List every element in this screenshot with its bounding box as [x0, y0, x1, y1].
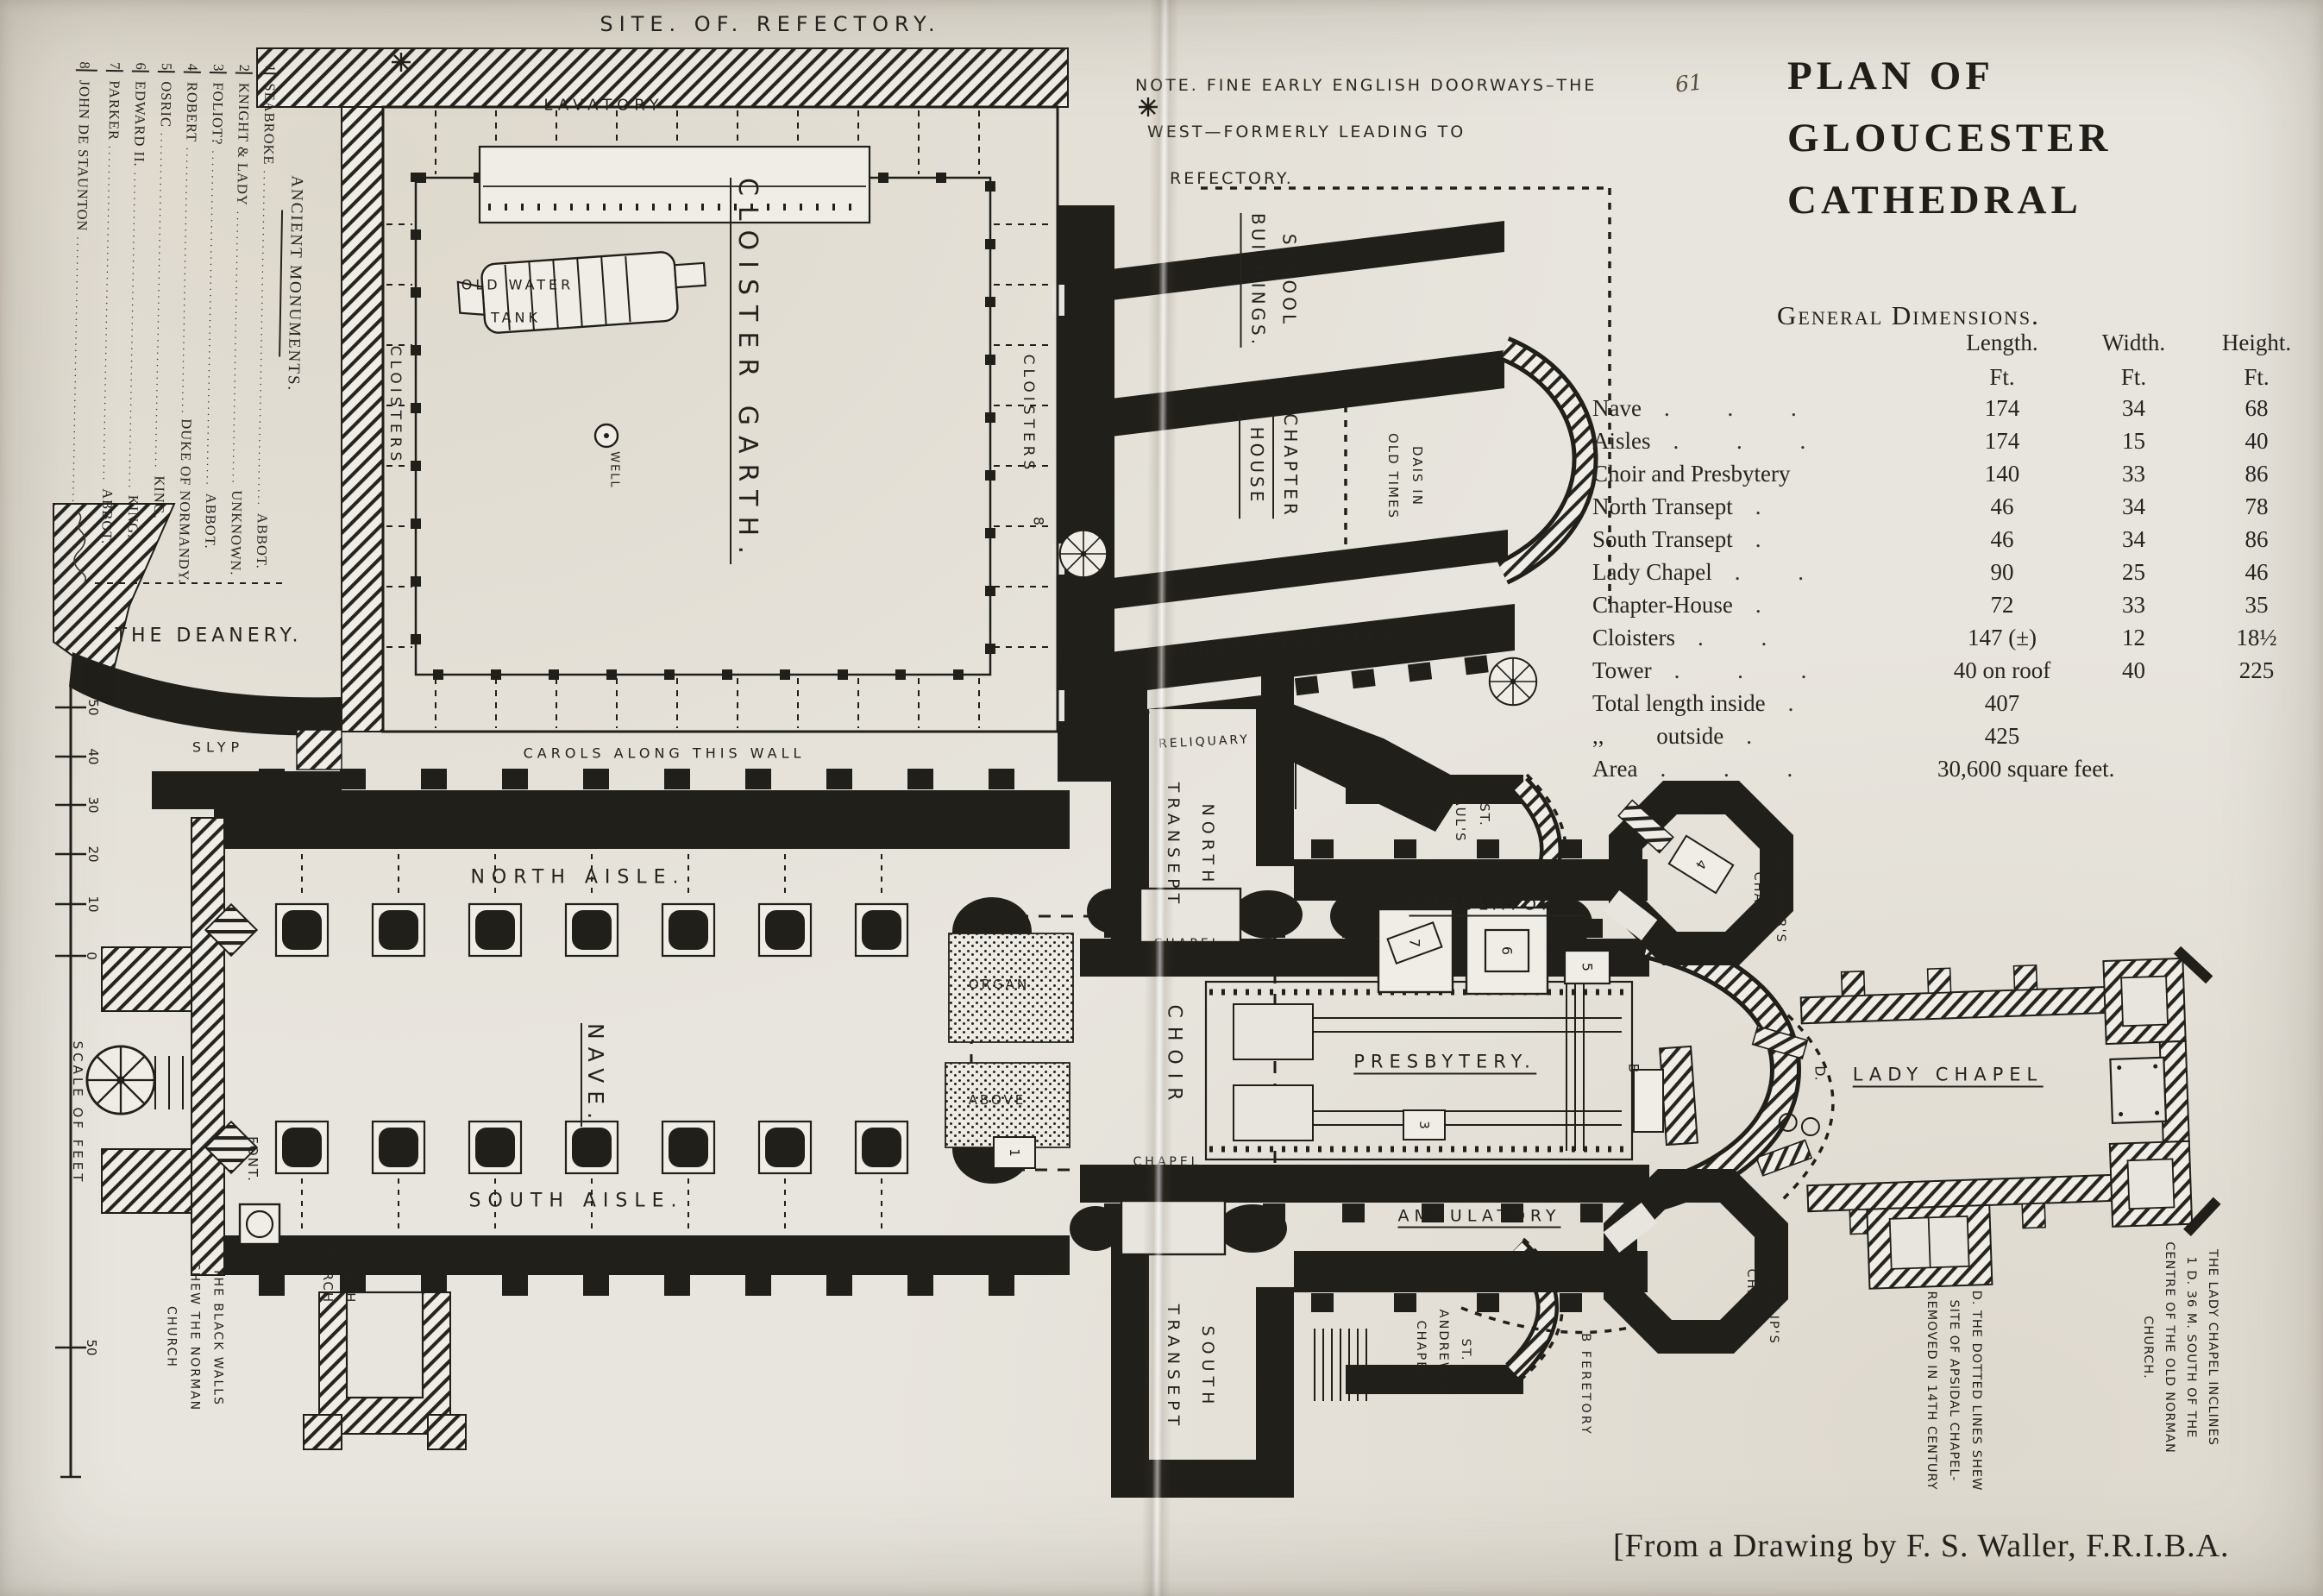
label-north-aisle: NORTH AISLE. [470, 867, 685, 889]
label-st-philips-chapel: ST. PHILIP'SCHAPEL [1740, 1252, 1785, 1345]
label-nave: NAVE. [581, 1023, 608, 1127]
label-the-deanery: THE DEANERY. [116, 625, 303, 647]
scale-tick: 30 [85, 796, 101, 813]
lavatory-and-water-tank [456, 147, 870, 447]
table-row: North Transept.463478 [1592, 493, 2313, 526]
table-row: Lady Chapel. .902546 [1592, 559, 2313, 592]
lady-chapel-letter-d: D. [1812, 1065, 1829, 1080]
refectory-note: NOTE. FINE EARLY ENGLISH DOORWAYS–THE WE… [1135, 62, 1597, 202]
label-south-porch: SOUTHPORCH [317, 1250, 361, 1304]
stair-turret [1060, 531, 1107, 577]
table-row: Cloisters. .147 (±)1218½ [1592, 625, 2313, 657]
label-lady-chapel-incline-note: THE LADY CHAPEL INCLINES1 D. 36 M. SOUTH… [2137, 1241, 2223, 1454]
handwritten-annotation [71, 510, 90, 593]
attribution: [From a Drawing by F. S. Waller, F.R.I.B… [1613, 1527, 2230, 1565]
label-lavatory: LAVATORY [543, 97, 663, 115]
scale-tick: 10 [85, 895, 101, 912]
label-chapel-south: CHAPEL [1133, 1155, 1202, 1169]
table-row: South Transept.463486 [1592, 526, 2313, 559]
label-black-walls-note: THE BLACK WALLSSHEW THE NORMANCHURCH [160, 1263, 229, 1411]
table-row: Chapter-House.723335 [1592, 592, 2313, 625]
table-header-row: Length. Width. Height. [1592, 330, 2313, 364]
label-dotted-lines-note: D. THE DOTTED LINES SHEWSITE OF APSIDAL … [1920, 1291, 1987, 1492]
monument-marker-8: 8 [1031, 517, 1047, 525]
table-row: ,, outside.425 [1592, 723, 2313, 756]
label-south-transept: SOUTHTRANSEPT [1156, 1304, 1225, 1430]
stair-turret [1490, 658, 1536, 705]
label-old-water-tank: TANK [491, 310, 541, 326]
label-ambulatory-north: AMBULATORY, [1409, 895, 1582, 917]
feretory-letter-b: B [1626, 1064, 1642, 1073]
compass-mark [392, 53, 411, 72]
legend-rule [279, 210, 283, 356]
label-school-buildings: SCHOOLBUILDINGS. [1240, 213, 1305, 348]
ancient-monuments-legend: ANCIENT MONUMENTS. 1SEABROKE............… [41, 61, 308, 502]
label-south-aisle: SOUTH AISLE. [468, 1191, 683, 1212]
label-slyp: SLYP [192, 739, 244, 756]
table-row: Nave. . .1743468 [1592, 395, 2313, 428]
label-cloisters-east: CLOISTERS [1020, 355, 1037, 474]
label-st-pauls-church: ST.PAUL'SCH. [1424, 788, 1497, 842]
stair-turret [87, 1046, 154, 1114]
monument-marker-6: 6 [1499, 946, 1516, 955]
label-cloisters-west: CLOISTERS [386, 346, 404, 466]
label-ambulatory-south: AMBULATORY [1397, 1207, 1560, 1228]
label-carols: CAROLS ALONG THIS WALL [524, 745, 806, 762]
page-title: PLAN OF GLOUCESTER CATHEDRAL [1787, 45, 2323, 231]
scale-tick: 40 [85, 748, 101, 764]
label-organ: ORGAN [969, 977, 1029, 992]
scale-tick: 20 [85, 845, 101, 862]
monument-marker-3: 3 [1403, 1109, 1446, 1140]
label-above: ABOVE [969, 1092, 1027, 1108]
label-scale-of-feet: SCALE OF FEET [70, 1041, 85, 1185]
label-old-water-tank: OLD WATER [461, 277, 574, 293]
south-porch [304, 1292, 466, 1449]
table-units-row: Ft. Ft. Ft. [1592, 364, 2313, 395]
label-lady-chapel: LADY CHAPEL [1853, 1065, 2044, 1088]
monument-marker-1: 1 [993, 1136, 1036, 1169]
label-st-andrews-chapel: ST.ANDREW'SCHAPEL [1409, 1310, 1477, 1392]
scanned-plan-page: PLAN OF GLOUCESTER CATHEDRAL General Dim… [0, 0, 2323, 1596]
label-feretory: B FERETORY [1579, 1333, 1592, 1436]
table-row: Tower. . .40 on roof40225 [1592, 657, 2313, 690]
monument-marker-7: 7 [1407, 939, 1423, 947]
label-chapter-house: CHAPTERHOUSE [1239, 413, 1306, 518]
table-row: Total length inside.407 [1592, 690, 2313, 723]
label-well: WELL [608, 451, 621, 489]
dimensions-heading: General Dimensions. [1777, 300, 2040, 331]
scale-tick: 0 [84, 952, 99, 960]
monument-marker-2: 2 [998, 1276, 1014, 1285]
page-number: 61 [1674, 69, 1705, 97]
label-presbytery: PRESBYTERY. [1353, 1052, 1536, 1075]
label-choir: CHOIR [1164, 1005, 1185, 1109]
monument-marker-5: 5 [1579, 963, 1596, 971]
label-cloister-garth: CLOISTER GARTH. [730, 178, 763, 564]
table-row: Aisles. . .1741540 [1592, 428, 2313, 461]
dimensions-table: Length. Width. Height. Ft. Ft. Ft. Nave.… [1592, 330, 2313, 789]
nave-pillars [205, 854, 1032, 1232]
label-dais: DAIS INOLD TIMES [1381, 433, 1429, 519]
label-font: FONT. [245, 1136, 261, 1183]
scale-tick: 50 [85, 699, 101, 715]
scale-tick: 50 [84, 1339, 99, 1355]
label-site-of-refectory: SITE. OF. REFECTORY. [600, 12, 940, 36]
label-botelers-chapel: BOTELER'SCHAPEL [1747, 859, 1792, 944]
label-north-transept: NORTHTRANSEPT [1156, 782, 1225, 908]
label-chapel-north: CHAPEL [1154, 937, 1222, 951]
table-row: Choir and Presbytery1403386 [1592, 461, 2313, 493]
table-row: Area. . .30,600 square feet. [1592, 756, 2313, 789]
